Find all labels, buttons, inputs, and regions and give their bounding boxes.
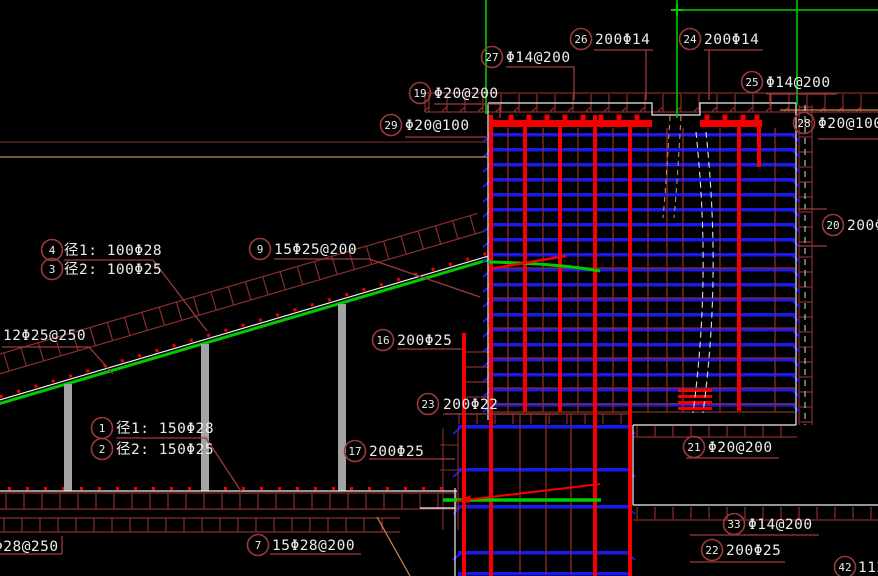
callout-text: 200Φ25 (726, 543, 781, 559)
callout-23: 23200Φ22 (418, 394, 499, 415)
callout-25: 25Φ14@200 (742, 72, 831, 93)
callout-33: 33Φ14@200 (724, 514, 813, 535)
callout-number: 42 (838, 561, 851, 574)
column-3 (338, 304, 346, 491)
callout-number: 7 (255, 539, 262, 552)
callout-number: 25 (745, 76, 758, 89)
callout-text: 15Φ25@200 (274, 242, 357, 258)
callout-text: 200Φ14 (704, 32, 759, 48)
callout-number: 23 (421, 398, 434, 411)
callout-22: 22200Φ25 (702, 540, 782, 561)
callout-text: 15Φ28@200 (272, 538, 355, 554)
callout-text: 径2: 100Φ25 (64, 261, 162, 278)
callout-number: 1 (99, 422, 106, 435)
callout-number: 24 (683, 33, 697, 46)
callout-number: 2 (99, 443, 106, 456)
callout-21: 21Φ20@200 (684, 437, 773, 458)
callout-text: 200Φ22 (443, 397, 498, 413)
cad-drawing-canvas[interactable]: 27Φ14@20026200Φ1424200Φ1425Φ14@20019Φ20@… (0, 0, 878, 576)
callout-17: 17200Φ25 (345, 441, 425, 462)
callout-16: 16200Φ25 (373, 330, 453, 351)
callout-29: 29Φ20@100 (381, 115, 470, 136)
dashed-curves (663, 105, 805, 425)
callout-24: 24200Φ14 (680, 29, 760, 50)
callout-number: 16 (376, 334, 389, 347)
wall-rebar-bars (466, 128, 800, 412)
callout-number: 4 (49, 244, 56, 257)
callout-9: 915Φ25@200 (250, 239, 358, 260)
callout-text: 200Φ25 (369, 444, 424, 460)
callout-number: 3 (49, 263, 56, 276)
callout-number: 29 (384, 119, 397, 132)
callout-text: 径1: 150Φ28 (116, 420, 214, 437)
callout-text: 径2: 150Φ25 (116, 441, 214, 458)
callout-number: 19 (413, 87, 426, 100)
callout-text: 200Φ14 (595, 32, 650, 48)
callout-number: 17 (348, 445, 361, 458)
edge-label: Φ28@250 (0, 539, 59, 555)
callout-42: 42112 (835, 557, 878, 576)
callout-text: Φ14@200 (766, 75, 831, 91)
callout-number: 27 (485, 51, 498, 64)
lower-column-top-band (455, 414, 632, 424)
callout-19: 19Φ20@200 (410, 83, 499, 104)
lower-column-rebar-bars (453, 414, 635, 576)
callout-text: 200Φ25 (397, 333, 452, 349)
callout-20: 20200Φ (823, 215, 878, 236)
callout-text: Φ20@200 (434, 86, 499, 102)
callout-26: 26200Φ14 (571, 29, 651, 50)
support-columns (64, 304, 346, 491)
axis-cross-marker (671, 4, 683, 16)
callout-number: 22 (705, 544, 718, 557)
callout-text: 200Φ (847, 218, 878, 234)
callout-number: 33 (727, 518, 740, 531)
callout-number: 20 (826, 219, 839, 232)
callout-2: 2径2: 150Φ25 (92, 439, 215, 460)
callout-7: 715Φ28@200 (248, 535, 356, 556)
floor-lower-mesh-band (0, 518, 400, 532)
callout-number: 28 (797, 117, 810, 130)
callout-number: 21 (687, 441, 700, 454)
callout-1: 1径1: 150Φ28 (92, 418, 215, 439)
callout-28: 28Φ20@100 (794, 113, 878, 134)
callout-3: 3径2: 100Φ25 (42, 259, 163, 280)
callout-text: Φ14@200 (748, 517, 813, 533)
wall-bottom-mesh-band (633, 426, 797, 437)
callout-number: 26 (574, 33, 587, 46)
callout-text: 112 (858, 560, 878, 576)
callout-number: 9 (257, 243, 264, 256)
callout-4: 4径1: 100Φ28 (42, 240, 163, 261)
edge-label: 12Φ25@250 (3, 328, 86, 344)
callout-27: 27Φ14@200 (482, 47, 571, 68)
callout-text: 径1: 100Φ28 (64, 242, 162, 259)
callout-text: Φ14@200 (506, 50, 571, 66)
callout-text: Φ20@200 (708, 440, 773, 456)
callout-text: Φ20@100 (405, 118, 470, 134)
column-1 (64, 384, 72, 491)
column-2 (201, 344, 209, 491)
callout-text: Φ20@100 (818, 116, 878, 132)
